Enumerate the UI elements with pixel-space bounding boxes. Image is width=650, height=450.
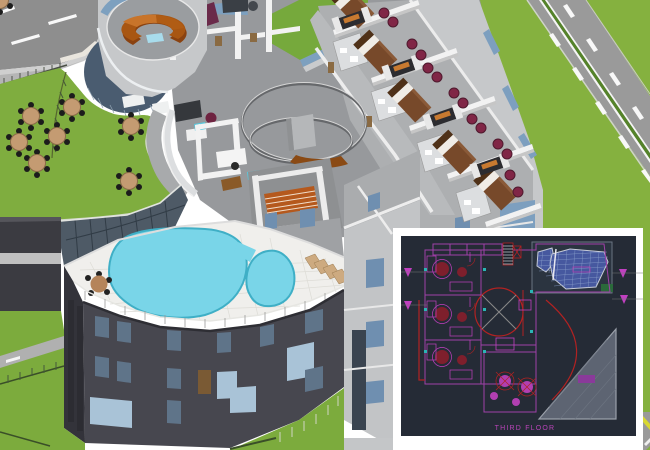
svg-text:THIRD FLOOR: THIRD FLOOR <box>495 425 556 432</box>
